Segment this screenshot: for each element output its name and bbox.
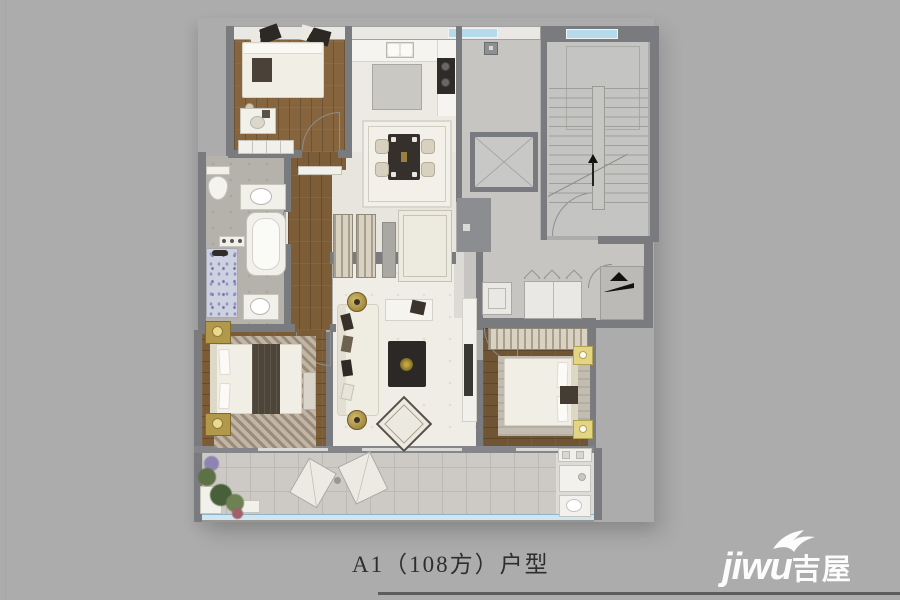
faucet-dot-3: [238, 239, 242, 243]
master-door-leaf: [330, 332, 331, 366]
hall-gray-panel: [382, 222, 396, 278]
hall-cabinet-b: [356, 214, 376, 278]
balcony-floor: [202, 452, 594, 516]
dining-centerpiece: [401, 152, 407, 162]
hall-cabinet-a: [333, 214, 353, 278]
washing-machine: [559, 465, 591, 492]
bath-sink: [250, 298, 270, 315]
coffee-table-plant: [400, 358, 413, 371]
bedroom-top-right-wall: [345, 26, 352, 156]
shoe-cabinet: [482, 282, 512, 315]
plant-red: [232, 508, 243, 519]
footer-table-line: [378, 592, 900, 595]
desk-stool: [250, 116, 265, 129]
place-setting-3: [391, 172, 396, 177]
living-balcony-slider: [362, 448, 462, 451]
laundry-sink: [566, 499, 582, 512]
bedroom-right-nightstand-bottom-dot: [579, 425, 587, 433]
stair-bottom-wall: [598, 236, 650, 244]
watermark-latin: jiwu: [722, 546, 792, 589]
master-balcony-slider: [258, 448, 328, 451]
place-setting-1: [391, 137, 396, 142]
place-setting-4: [412, 172, 417, 177]
porch-right-wall: [644, 240, 653, 328]
bedroom-right-accent: [560, 386, 578, 404]
left-wall-bathroom: [198, 152, 206, 334]
master-pillow-1: [218, 349, 230, 376]
watermark-cjk: 吉屋: [792, 546, 852, 588]
entry-bedroom-wall: [462, 318, 596, 328]
washing-machine-door: [578, 473, 586, 481]
foyer-marble-rug: [398, 210, 452, 282]
kitchen-sink-bowl-left: [388, 44, 399, 56]
master-nightstand-top-ornament: [212, 326, 223, 337]
stairwell-window: [566, 29, 618, 39]
kitchen-right-wall: [456, 26, 462, 202]
bed-top-throw: [252, 58, 272, 82]
master-headboard: [210, 344, 217, 414]
desk-item: [262, 110, 270, 118]
fold-door-peak: [524, 270, 540, 279]
shower-handle: [212, 250, 228, 256]
fold-door-peak: [566, 270, 583, 279]
kitchen-island: [372, 64, 422, 110]
laundry-shelf-item-1: [562, 451, 570, 459]
balcony-side-table: [334, 477, 341, 484]
stairs-arrow-stem: [592, 162, 594, 186]
place-setting-2: [412, 137, 417, 142]
bed-top-pillow-band: [244, 44, 322, 54]
master-top-wall-stub: [330, 324, 336, 332]
dining-chair-3: [421, 139, 435, 154]
faucet-dot-1: [222, 239, 226, 243]
master-pillow-2: [218, 383, 230, 410]
tv: [464, 344, 473, 396]
page-edge-line: [5, 0, 6, 600]
floor-plan-page: A1（108方）户型 jiwu 吉屋: [0, 0, 900, 600]
master-foot-bench: [303, 372, 316, 410]
dining-chair-4: [421, 162, 435, 177]
toilet-tank: [206, 166, 230, 175]
plant-green-1: [198, 468, 216, 486]
porch-bottom-wall: [596, 320, 646, 328]
shaft-switch-dot: [463, 224, 470, 231]
entry-arrow-icon: [610, 272, 628, 281]
watermark: jiwu 吉屋: [722, 528, 898, 590]
plan-title: A1（108方）户型: [352, 545, 612, 575]
fold-door-peak: [544, 270, 561, 279]
dining-chair-1: [375, 139, 389, 154]
laundry-shelf-item-2: [576, 451, 584, 459]
stairs-stringer: [592, 86, 605, 210]
dining-chair-2: [375, 162, 389, 177]
balcony-right-wall: [594, 448, 602, 520]
bedroom-top-bottom-wall-stub: [338, 150, 352, 158]
side-lamp-top-core: [354, 299, 360, 305]
bedroom-top-door-leaf: [339, 112, 340, 150]
elevator-shaft: [470, 132, 538, 192]
balcony-railing: [202, 514, 594, 522]
shower-tub: [206, 248, 238, 318]
side-lamp-bottom-core: [354, 417, 360, 423]
master-nightstand-bottom-ornament: [212, 418, 223, 429]
cabinet-fold-doors: [524, 266, 588, 279]
faucet-dot-2: [230, 239, 234, 243]
bedroom-right-pillow-1: [557, 362, 569, 388]
cooktop-burner-1: [441, 62, 450, 71]
master-bed-runner: [252, 344, 280, 414]
kitchen-sink-bowl-right: [401, 44, 412, 56]
cooktop-burner-2: [441, 78, 450, 87]
living-right-wall-b: [476, 360, 483, 452]
left-wall-upper: [226, 26, 234, 156]
hall-console: [298, 166, 342, 175]
hall-wood-corridor: [288, 168, 332, 330]
corridor-stair-wall: [541, 42, 547, 240]
sofa-pillow-3: [341, 359, 353, 376]
bathtub-inner: [252, 218, 280, 270]
right-exterior-wall: [650, 26, 659, 242]
vanity-sink: [250, 188, 272, 205]
utility-column-dot: [489, 46, 493, 50]
bench-pillow: [410, 300, 426, 316]
entry-cabinet-row: [524, 281, 582, 319]
bedroom-right-nightstand-top-dot: [579, 351, 587, 359]
dresser: [238, 140, 294, 154]
